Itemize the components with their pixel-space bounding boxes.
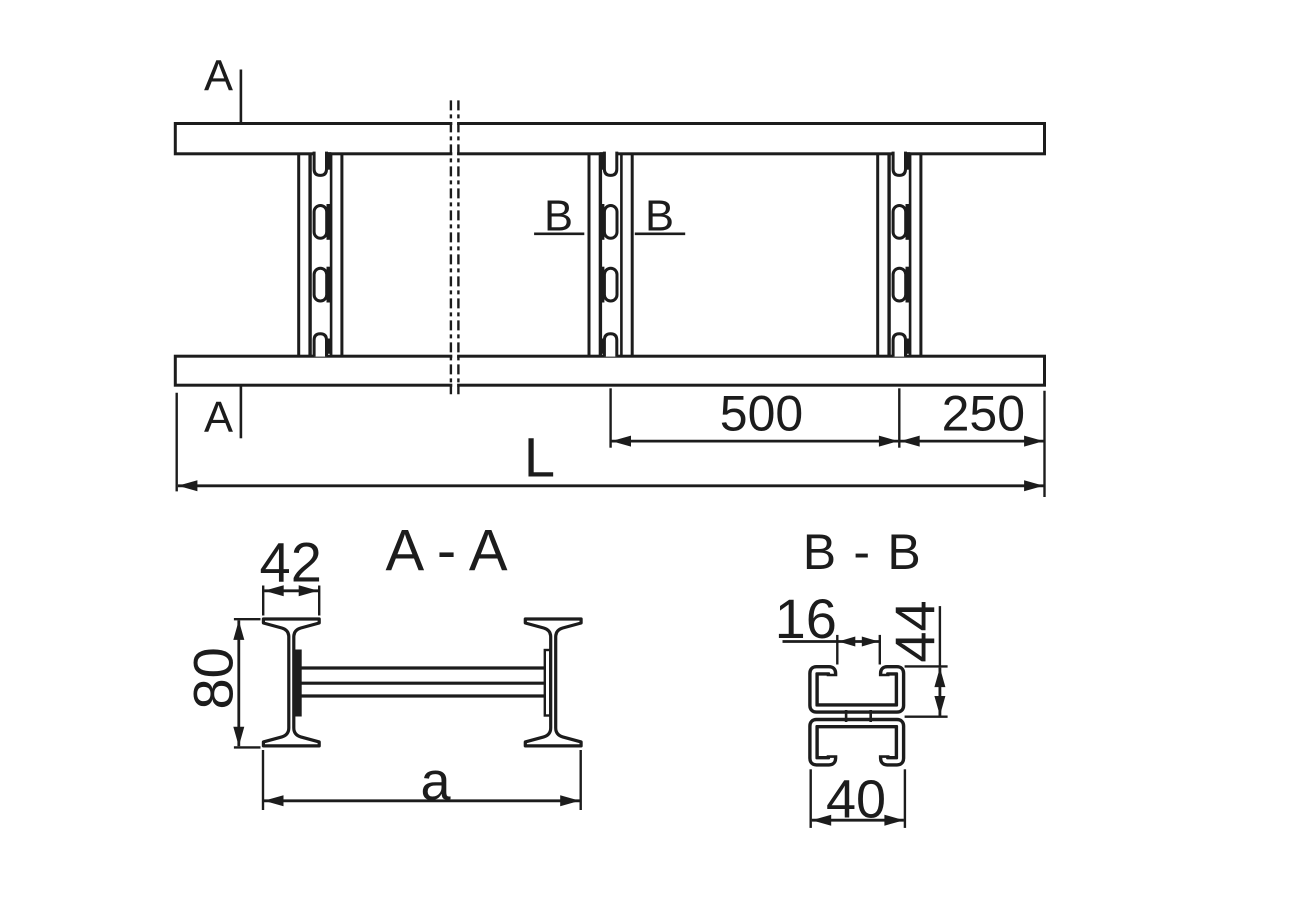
svg-text:L: L bbox=[524, 426, 555, 489]
svg-text:42: 42 bbox=[260, 531, 322, 594]
svg-text:A: A bbox=[204, 394, 233, 442]
svg-text:80: 80 bbox=[181, 647, 244, 709]
svg-text:16: 16 bbox=[775, 587, 837, 650]
svg-text:a: a bbox=[420, 751, 451, 811]
svg-text:A: A bbox=[204, 53, 233, 101]
svg-text:B - B: B - B bbox=[803, 524, 921, 580]
svg-text:250: 250 bbox=[942, 385, 1025, 441]
svg-text:40: 40 bbox=[826, 769, 886, 829]
svg-text:44: 44 bbox=[883, 600, 946, 662]
svg-text:B: B bbox=[544, 192, 573, 240]
svg-text:500: 500 bbox=[720, 385, 803, 441]
svg-text:B: B bbox=[645, 192, 674, 240]
svg-text:A - A: A - A bbox=[386, 519, 508, 584]
